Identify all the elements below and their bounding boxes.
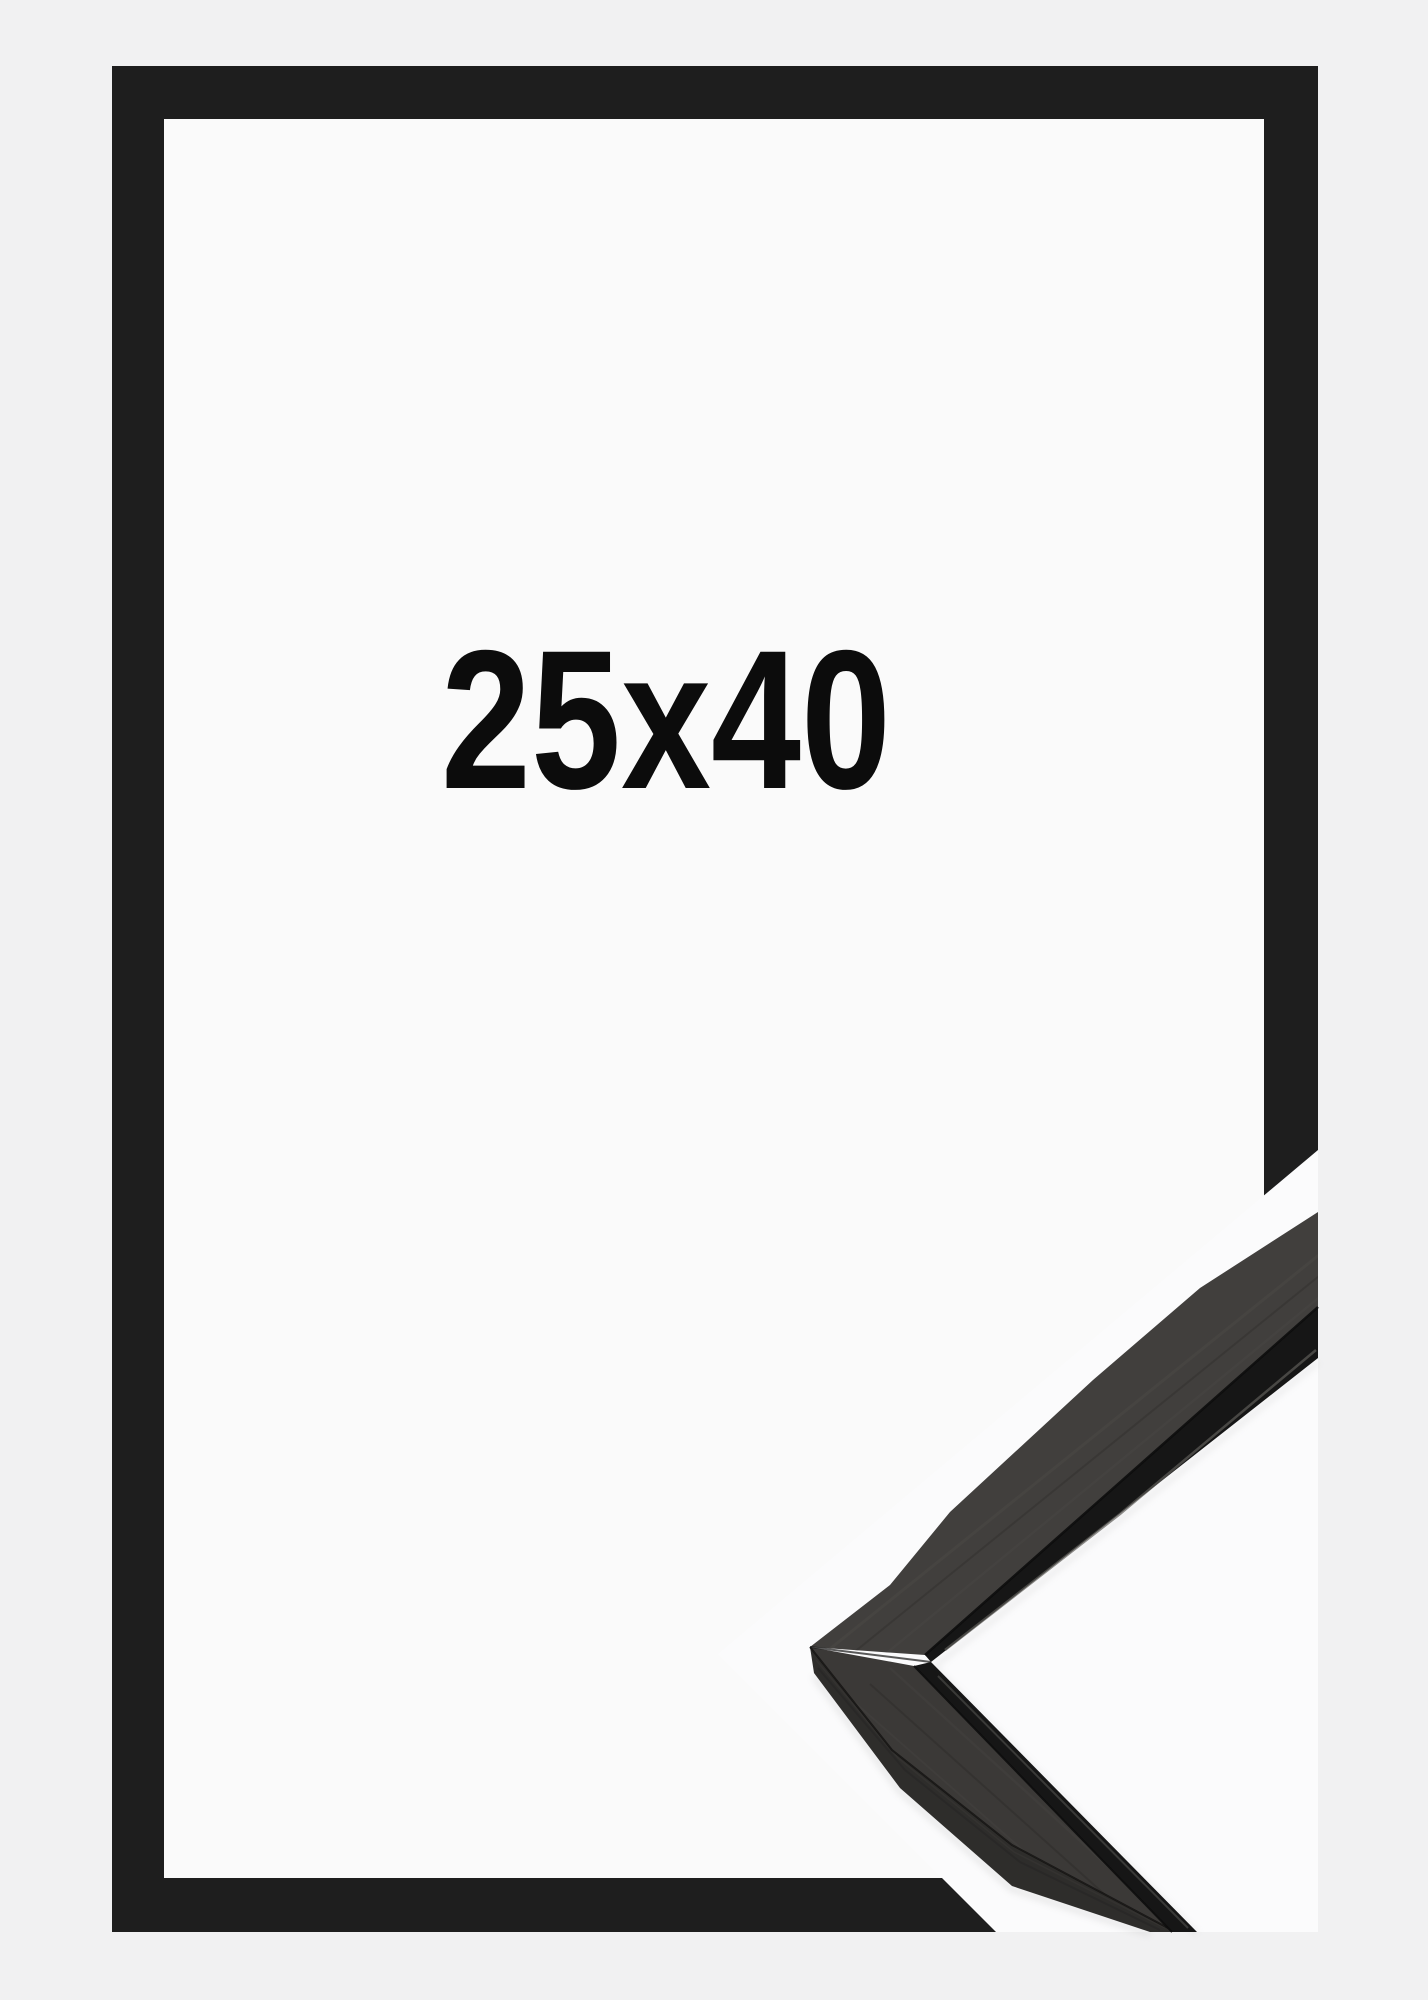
frame-product-graphic: 25x40	[0, 0, 1428, 2000]
size-label: 25x40	[441, 609, 891, 830]
product-image: 25x40	[0, 0, 1428, 2000]
